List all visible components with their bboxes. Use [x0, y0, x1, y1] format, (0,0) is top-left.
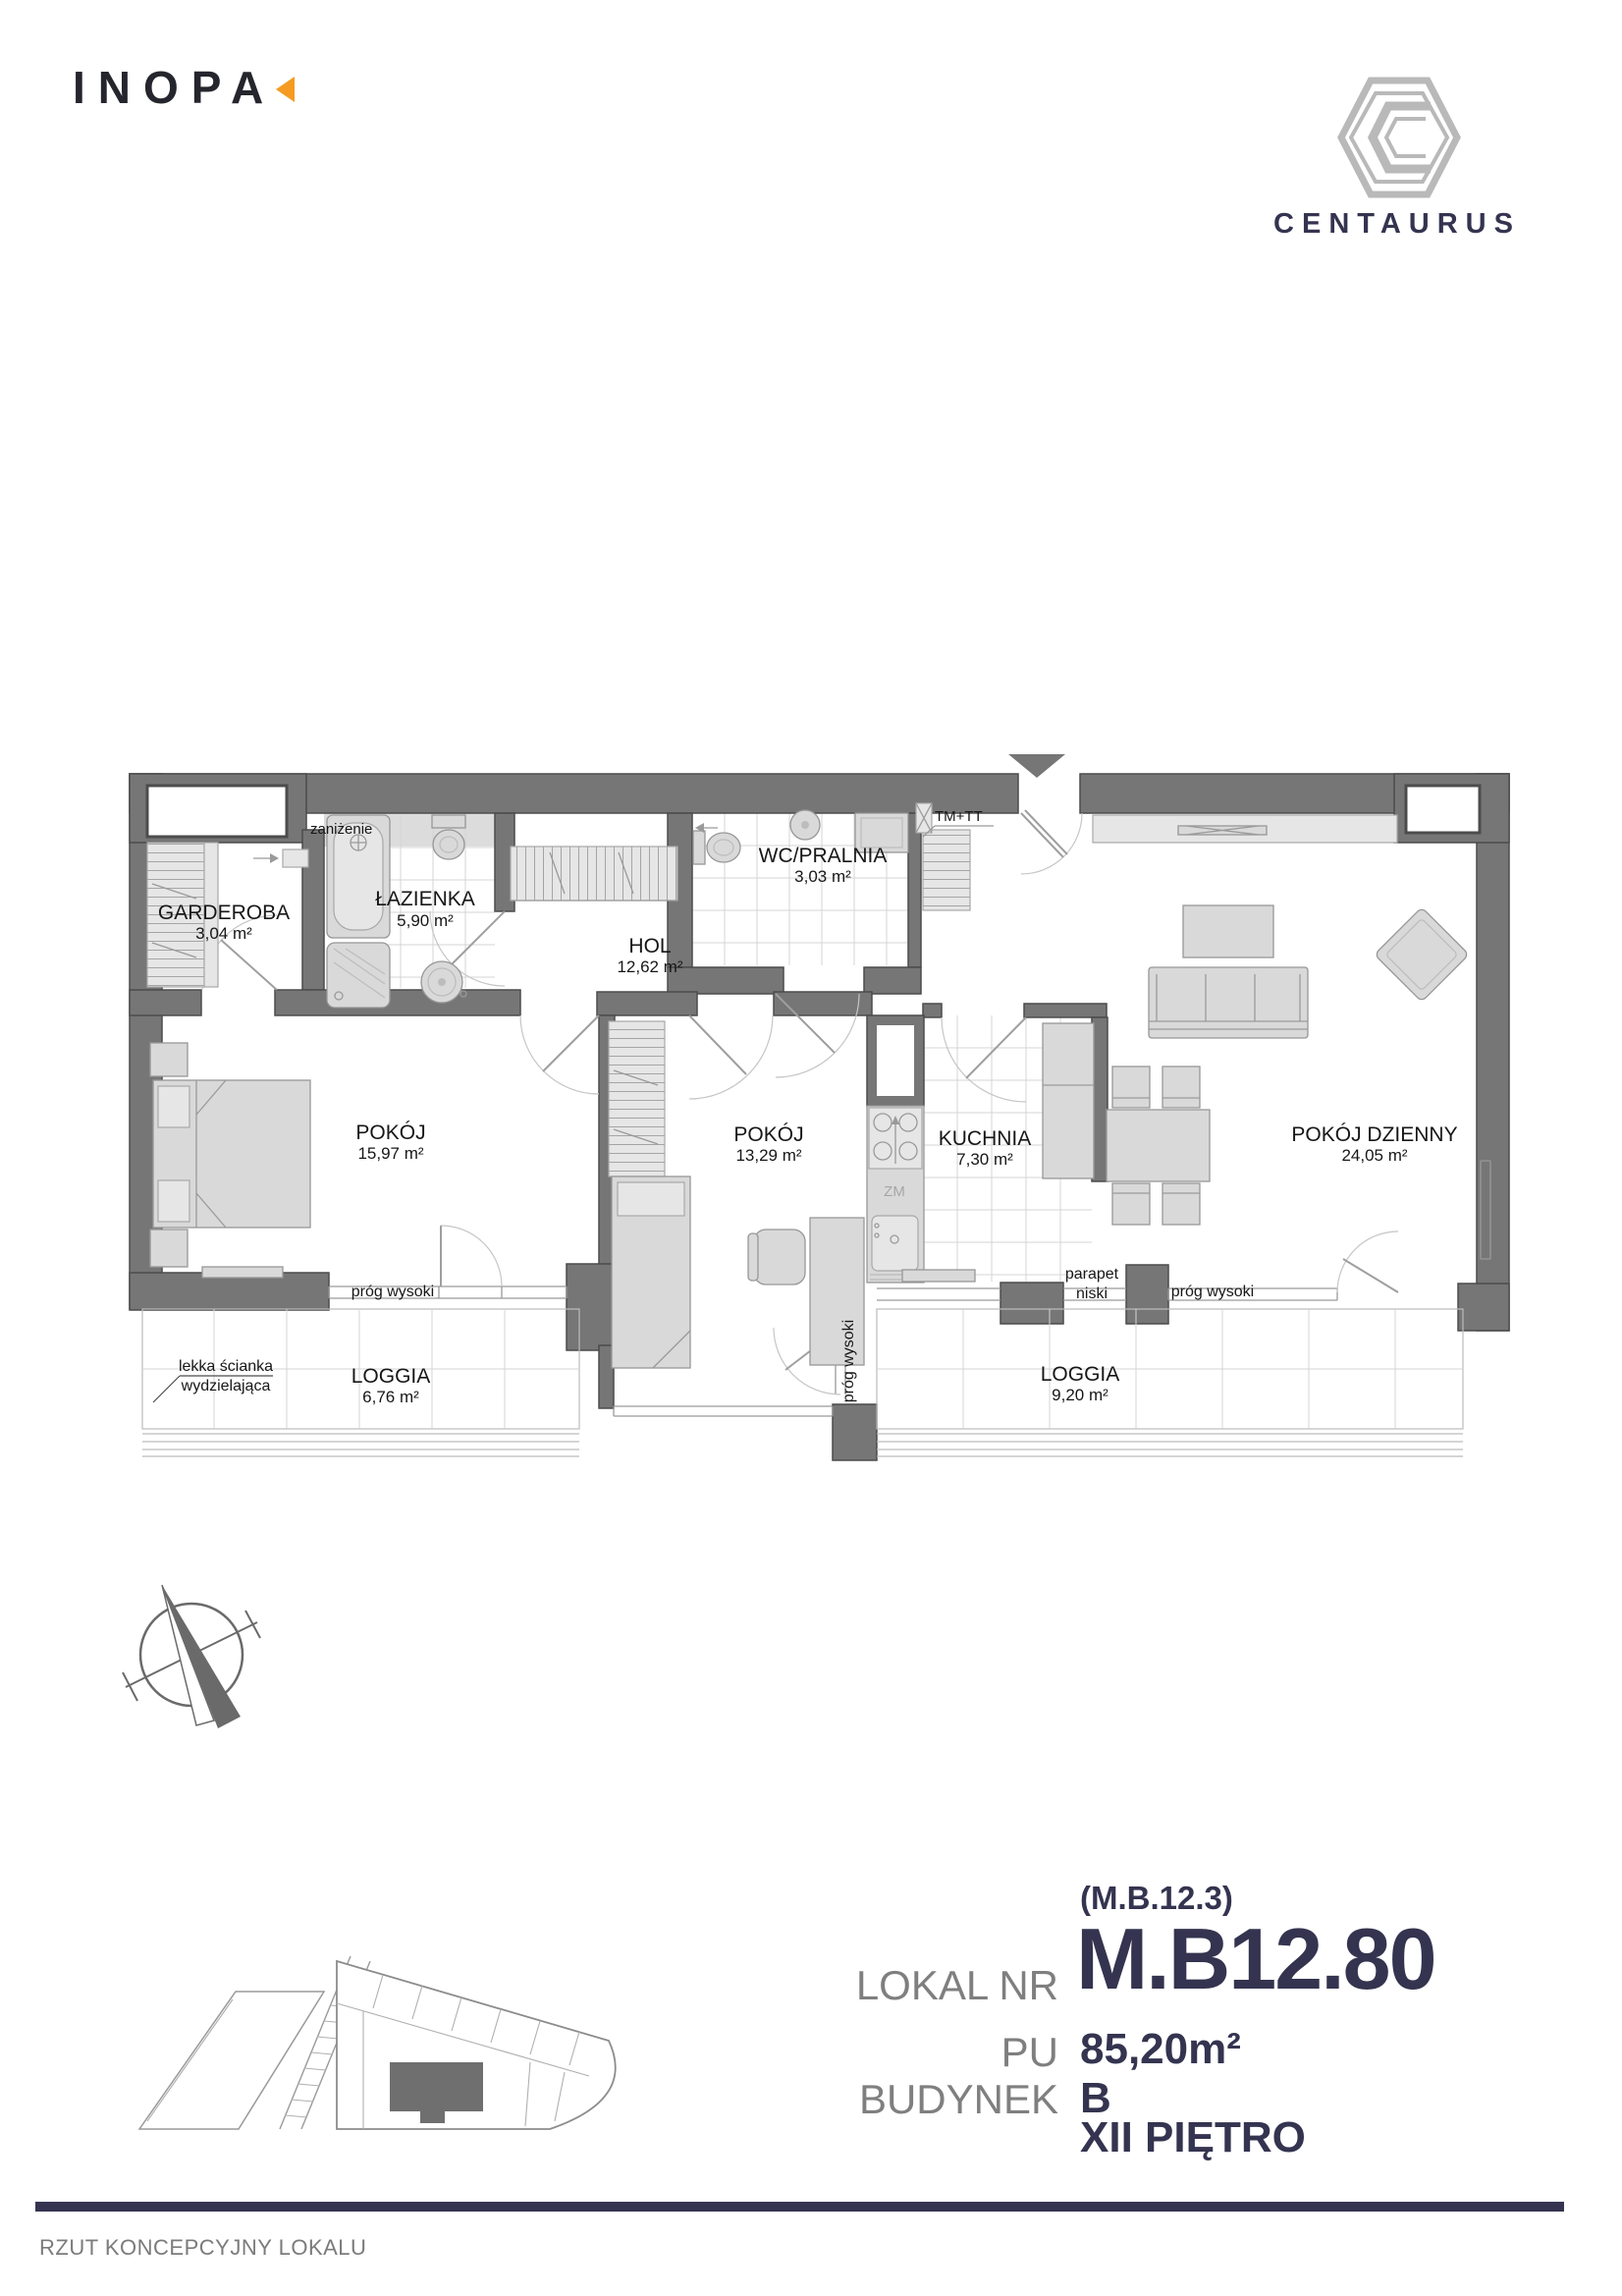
room-area-loggia2: 9,20 m² — [1052, 1386, 1108, 1404]
loggia-right — [877, 1309, 1463, 1456]
wardrobe-bedroom2-icon — [609, 1021, 665, 1176]
shower-icon — [327, 943, 390, 1008]
highlighted-unit — [390, 2062, 483, 2111]
wardrobe-hol-icon — [511, 847, 677, 901]
centaurus-logo-text: CENTAURUS — [1235, 208, 1559, 241]
room-area-loggia1: 6,76 m² — [362, 1388, 419, 1406]
annotation-prog-right: próg wysoki — [1171, 1284, 1254, 1300]
switch-arrow-garderoba-icon — [253, 849, 308, 867]
tm-tt-box-icon — [916, 803, 932, 833]
top-wall-niche-left — [147, 786, 287, 837]
floor-value: XII PIĘTRO — [1080, 2113, 1306, 2162]
annotation-lekka-1: lekka ścianka — [179, 1358, 273, 1375]
bed-double-icon — [153, 1080, 310, 1228]
washbasin-wc-icon — [790, 810, 820, 840]
dining-set-icon — [1107, 1066, 1210, 1225]
bench-icon — [202, 1267, 283, 1278]
room-label-pokoj2: POKÓJ — [733, 1123, 803, 1146]
room-label-dzienny: POKÓJ DZIENNY — [1291, 1123, 1457, 1146]
inopa-triangle-icon — [276, 77, 295, 102]
room-area-kuchnia: 7,30 m² — [956, 1150, 1013, 1169]
room-area-pokoj2: 13,29 m² — [735, 1146, 801, 1165]
budynek-label: BUDYNEK — [805, 2076, 1058, 2123]
room-label-kuchnia: KUCHNIA — [939, 1127, 1032, 1150]
annotation-parapet-2: niski — [1076, 1285, 1108, 1302]
sofa-icon — [1149, 967, 1308, 1038]
fridge-icon — [1043, 1023, 1094, 1178]
annotation-prog-mid: próg wysoki — [840, 1320, 857, 1402]
room-label-loggia2: LOGGIA — [1041, 1363, 1120, 1386]
room-area-dzienny: 24,05 m² — [1341, 1146, 1407, 1165]
nightstand-top-icon — [150, 1043, 188, 1076]
room-area-wc: 3,03 m² — [794, 867, 851, 886]
toilet-bathroom-icon — [432, 815, 465, 859]
key-plan — [139, 1956, 616, 2129]
inopa-logo: INOPA — [73, 61, 295, 114]
bed-single-icon — [612, 1176, 690, 1368]
stove-icon — [869, 1108, 922, 1169]
pu-value: 85,20m² — [1080, 2025, 1241, 2074]
centaurus-logo-icon — [1341, 81, 1457, 194]
room-label-hol: HOL — [628, 935, 671, 957]
tv-sideboard-icon — [1093, 815, 1397, 843]
top-wall-niche-right — [1406, 786, 1480, 833]
armchair-icon — [1375, 907, 1469, 1002]
annotation-zanizenie: zaniżenie — [310, 821, 372, 838]
wardrobe-entry-icon — [923, 830, 970, 910]
pu-label: PU — [805, 2029, 1058, 2076]
desk-chair-icon — [748, 1230, 805, 1285]
coffee-table-icon — [1183, 905, 1273, 957]
room-label-lazienka: ŁAZIENKA — [375, 888, 475, 910]
annotation-lekka-2: wydzielająca — [181, 1378, 271, 1394]
annotation-parapet-1: parapet — [1065, 1266, 1119, 1283]
toilet-wc-icon — [693, 831, 740, 864]
kitchen-bench-icon — [902, 1270, 975, 1282]
room-area-hol: 12,62 m² — [617, 957, 682, 976]
room-area-pokoj1: 15,97 m² — [357, 1144, 423, 1163]
room-label-wc: WC/PRALNIA — [759, 845, 888, 867]
north-arrow-icon — [123, 1585, 260, 1728]
entrance-door — [1021, 810, 1082, 874]
nightstand-bottom-icon — [150, 1230, 188, 1267]
annotation-zm: ZM — [884, 1183, 905, 1200]
footer-caption: RZUT KONCEPCYJNY LOKALU — [39, 2235, 366, 2261]
room-area-garderoba: 3,04 m² — [195, 924, 252, 943]
room-label-pokoj1: POKÓJ — [355, 1121, 425, 1144]
annotation-prog-left: próg wysoki — [351, 1284, 434, 1300]
inopa-logo-text: INOPA — [73, 61, 276, 114]
room-label-garderoba: GARDEROBA — [158, 902, 290, 924]
annotation-tm-tt: TM+TT — [935, 808, 983, 825]
footer-divider-bar — [35, 2202, 1564, 2212]
room-label-loggia1: LOGGIA — [351, 1365, 431, 1388]
lokal-nr-label: LOKAL NR — [805, 1962, 1058, 2009]
lokal-nr-value: M.B12.80 — [1076, 1909, 1435, 2009]
room-area-lazienka: 5,90 m² — [397, 911, 454, 930]
plan-sheet: GARDEROBA 3,04 m² ŁAZIENKA 5,90 m² HOL 1… — [0, 0, 1622, 2296]
